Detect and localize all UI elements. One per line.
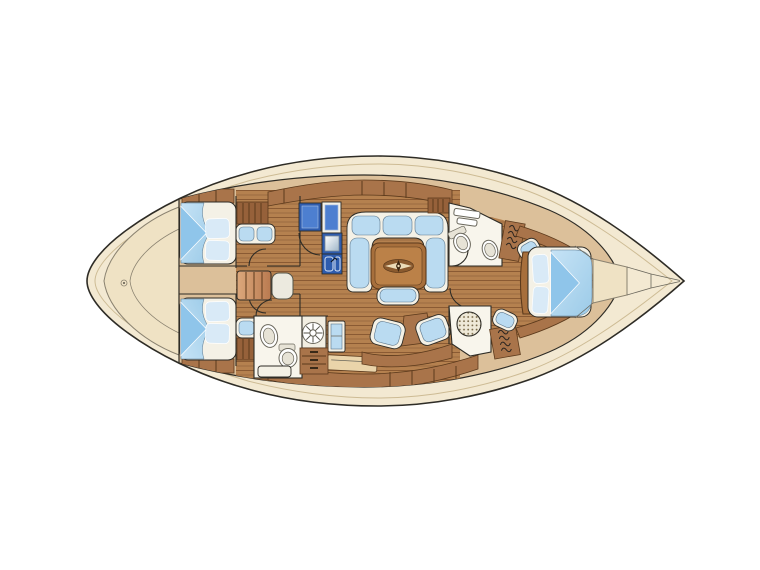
shower-grate-icon bbox=[457, 312, 481, 336]
island-berth-pillow bbox=[532, 254, 549, 283]
island-berth-pillow bbox=[532, 287, 549, 314]
galley-fridge-lid bbox=[325, 205, 338, 230]
compass-rose-icon bbox=[384, 260, 414, 273]
shower-fan-icon bbox=[303, 323, 324, 344]
companionway-step-pad bbox=[272, 273, 293, 299]
boat-floor-plan bbox=[0, 0, 760, 570]
backstay-pin bbox=[123, 282, 125, 284]
salon-bench bbox=[377, 287, 419, 305]
salon-chairs bbox=[362, 312, 452, 367]
stove-icon bbox=[325, 236, 339, 251]
boat-layout-figure bbox=[0, 0, 760, 570]
toilet-icon bbox=[279, 344, 297, 368]
stern-deck bbox=[104, 207, 179, 355]
salon-fridge-box bbox=[328, 321, 345, 352]
aft-head-drawers bbox=[300, 348, 328, 374]
aft-head-bench bbox=[258, 366, 291, 377]
salon-table bbox=[371, 243, 426, 289]
settee-side-locker bbox=[428, 198, 450, 213]
galley-counter-inset bbox=[302, 206, 318, 228]
